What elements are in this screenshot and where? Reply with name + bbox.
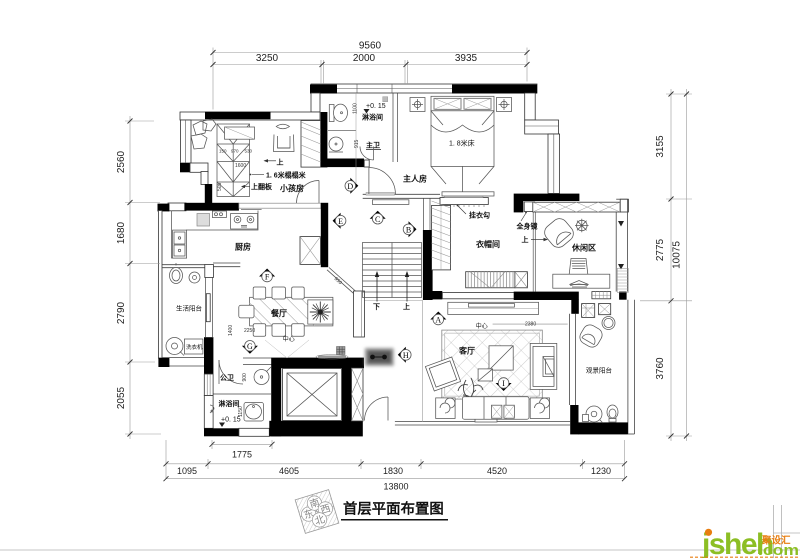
svg-text:生活阳台: 生活阳台 [176,304,202,313]
svg-text:1830: 1830 [383,466,403,476]
svg-text:13800: 13800 [383,482,408,492]
svg-text:G: G [247,342,253,351]
svg-text:900: 900 [242,373,248,382]
svg-text:2775: 2775 [655,238,666,261]
svg-text:10075: 10075 [672,241,683,269]
svg-text:衣帽间: 衣帽间 [476,239,500,249]
svg-text:观景阳台: 观景阳台 [586,366,612,375]
svg-text:C: C [375,215,380,224]
svg-text:厨房: 厨房 [235,242,251,252]
svg-text:1. 8米床: 1. 8米床 [449,139,475,148]
svg-text:上: 上 [403,302,410,311]
svg-text:主人房: 主人房 [403,174,427,184]
svg-text:1400: 1400 [228,325,234,336]
svg-text:150: 150 [219,149,227,154]
svg-text:上翻板: 上翻板 [251,182,273,191]
svg-text:公卫: 公卫 [220,374,234,382]
svg-text:505: 505 [217,182,223,191]
svg-text:2055: 2055 [116,386,127,409]
svg-text:1600: 1600 [235,163,246,169]
svg-text:中心: 中心 [476,322,488,330]
svg-text:挂衣勾: 挂衣勾 [469,211,490,220]
svg-text:淋浴间: 淋浴间 [362,113,383,122]
svg-text:4520: 4520 [487,466,507,476]
svg-text:+0. 15: +0. 15 [366,103,386,110]
svg-text:3760: 3760 [655,357,666,380]
svg-text:2250: 2250 [244,328,255,334]
svg-text:970: 970 [231,149,239,154]
svg-text:+0. 15: +0. 15 [221,417,241,424]
svg-text:B: B [406,225,411,234]
svg-text:F: F [265,273,270,282]
svg-text:3155: 3155 [655,135,666,158]
svg-text:首层平面布置图: 首层平面布置图 [343,500,444,518]
svg-text:2380: 2380 [525,321,536,327]
svg-text:2790: 2790 [116,301,127,324]
svg-text:530: 530 [245,149,253,154]
svg-text:1100: 1100 [353,103,359,114]
svg-text:下: 下 [373,303,380,311]
svg-text:上: 上 [277,158,284,167]
svg-text:全身镜: 全身镜 [516,222,538,231]
svg-text:淋浴间: 淋浴间 [219,399,240,408]
svg-text:洗衣机: 洗衣机 [186,343,203,351]
svg-text:1680: 1680 [116,221,127,244]
svg-text:A: A [435,316,441,325]
svg-text:上: 上 [522,235,529,244]
svg-text:D: D [347,182,353,191]
svg-text:休闲区: 休闲区 [571,243,596,253]
svg-text:1150: 1150 [238,406,244,417]
svg-text:客厅: 客厅 [458,346,475,356]
svg-text:3935: 3935 [455,53,478,64]
svg-text:主卫: 主卫 [366,141,380,150]
svg-text:I: I [502,379,505,388]
svg-text:餐厅: 餐厅 [270,308,287,318]
svg-text:E: E [338,217,343,226]
svg-text:4605: 4605 [279,466,299,476]
svg-text:小孩房: 小孩房 [279,183,304,193]
svg-text:H: H [403,351,409,360]
svg-text:3250: 3250 [256,53,279,64]
svg-text:1. 6米榻榻米: 1. 6米榻榻米 [266,171,307,180]
svg-text:1095: 1095 [177,466,197,476]
svg-text:9560: 9560 [359,41,382,52]
svg-text:2000: 2000 [353,53,376,64]
svg-text:中心: 中心 [283,335,295,343]
svg-text:1775: 1775 [232,450,252,460]
svg-text:2560: 2560 [116,150,127,173]
svg-text:915: 915 [354,139,360,148]
svg-text:.com: .com [758,543,799,558]
svg-text:1230: 1230 [591,466,611,476]
